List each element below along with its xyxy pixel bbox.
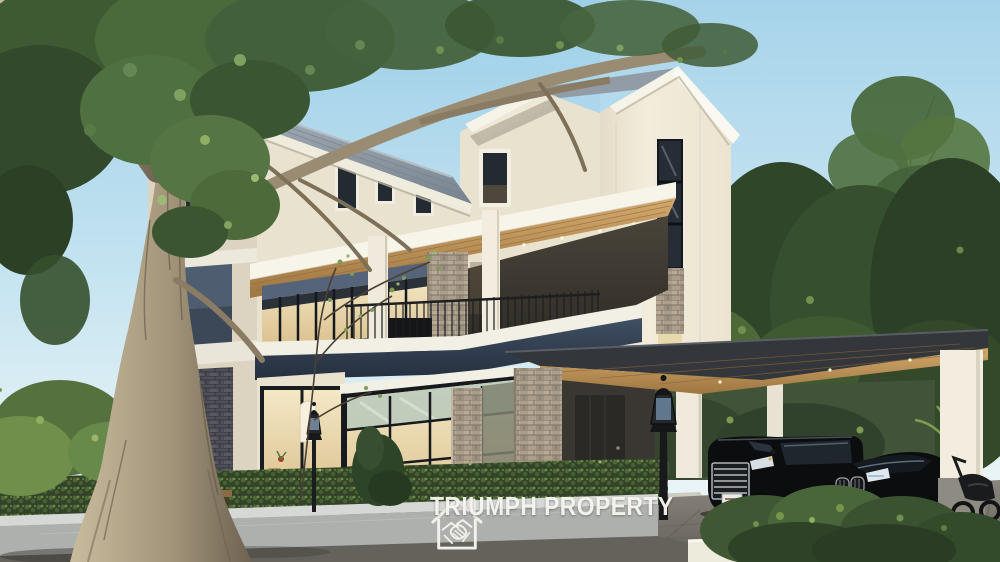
brand-text: TRIUMPH PROPERTY [430,491,673,522]
scene-canvas [0,0,1000,562]
watermark: TRIUMPH PROPERTY [430,491,707,522]
architectural-render: TRIUMPH PROPERTY [0,0,1000,562]
